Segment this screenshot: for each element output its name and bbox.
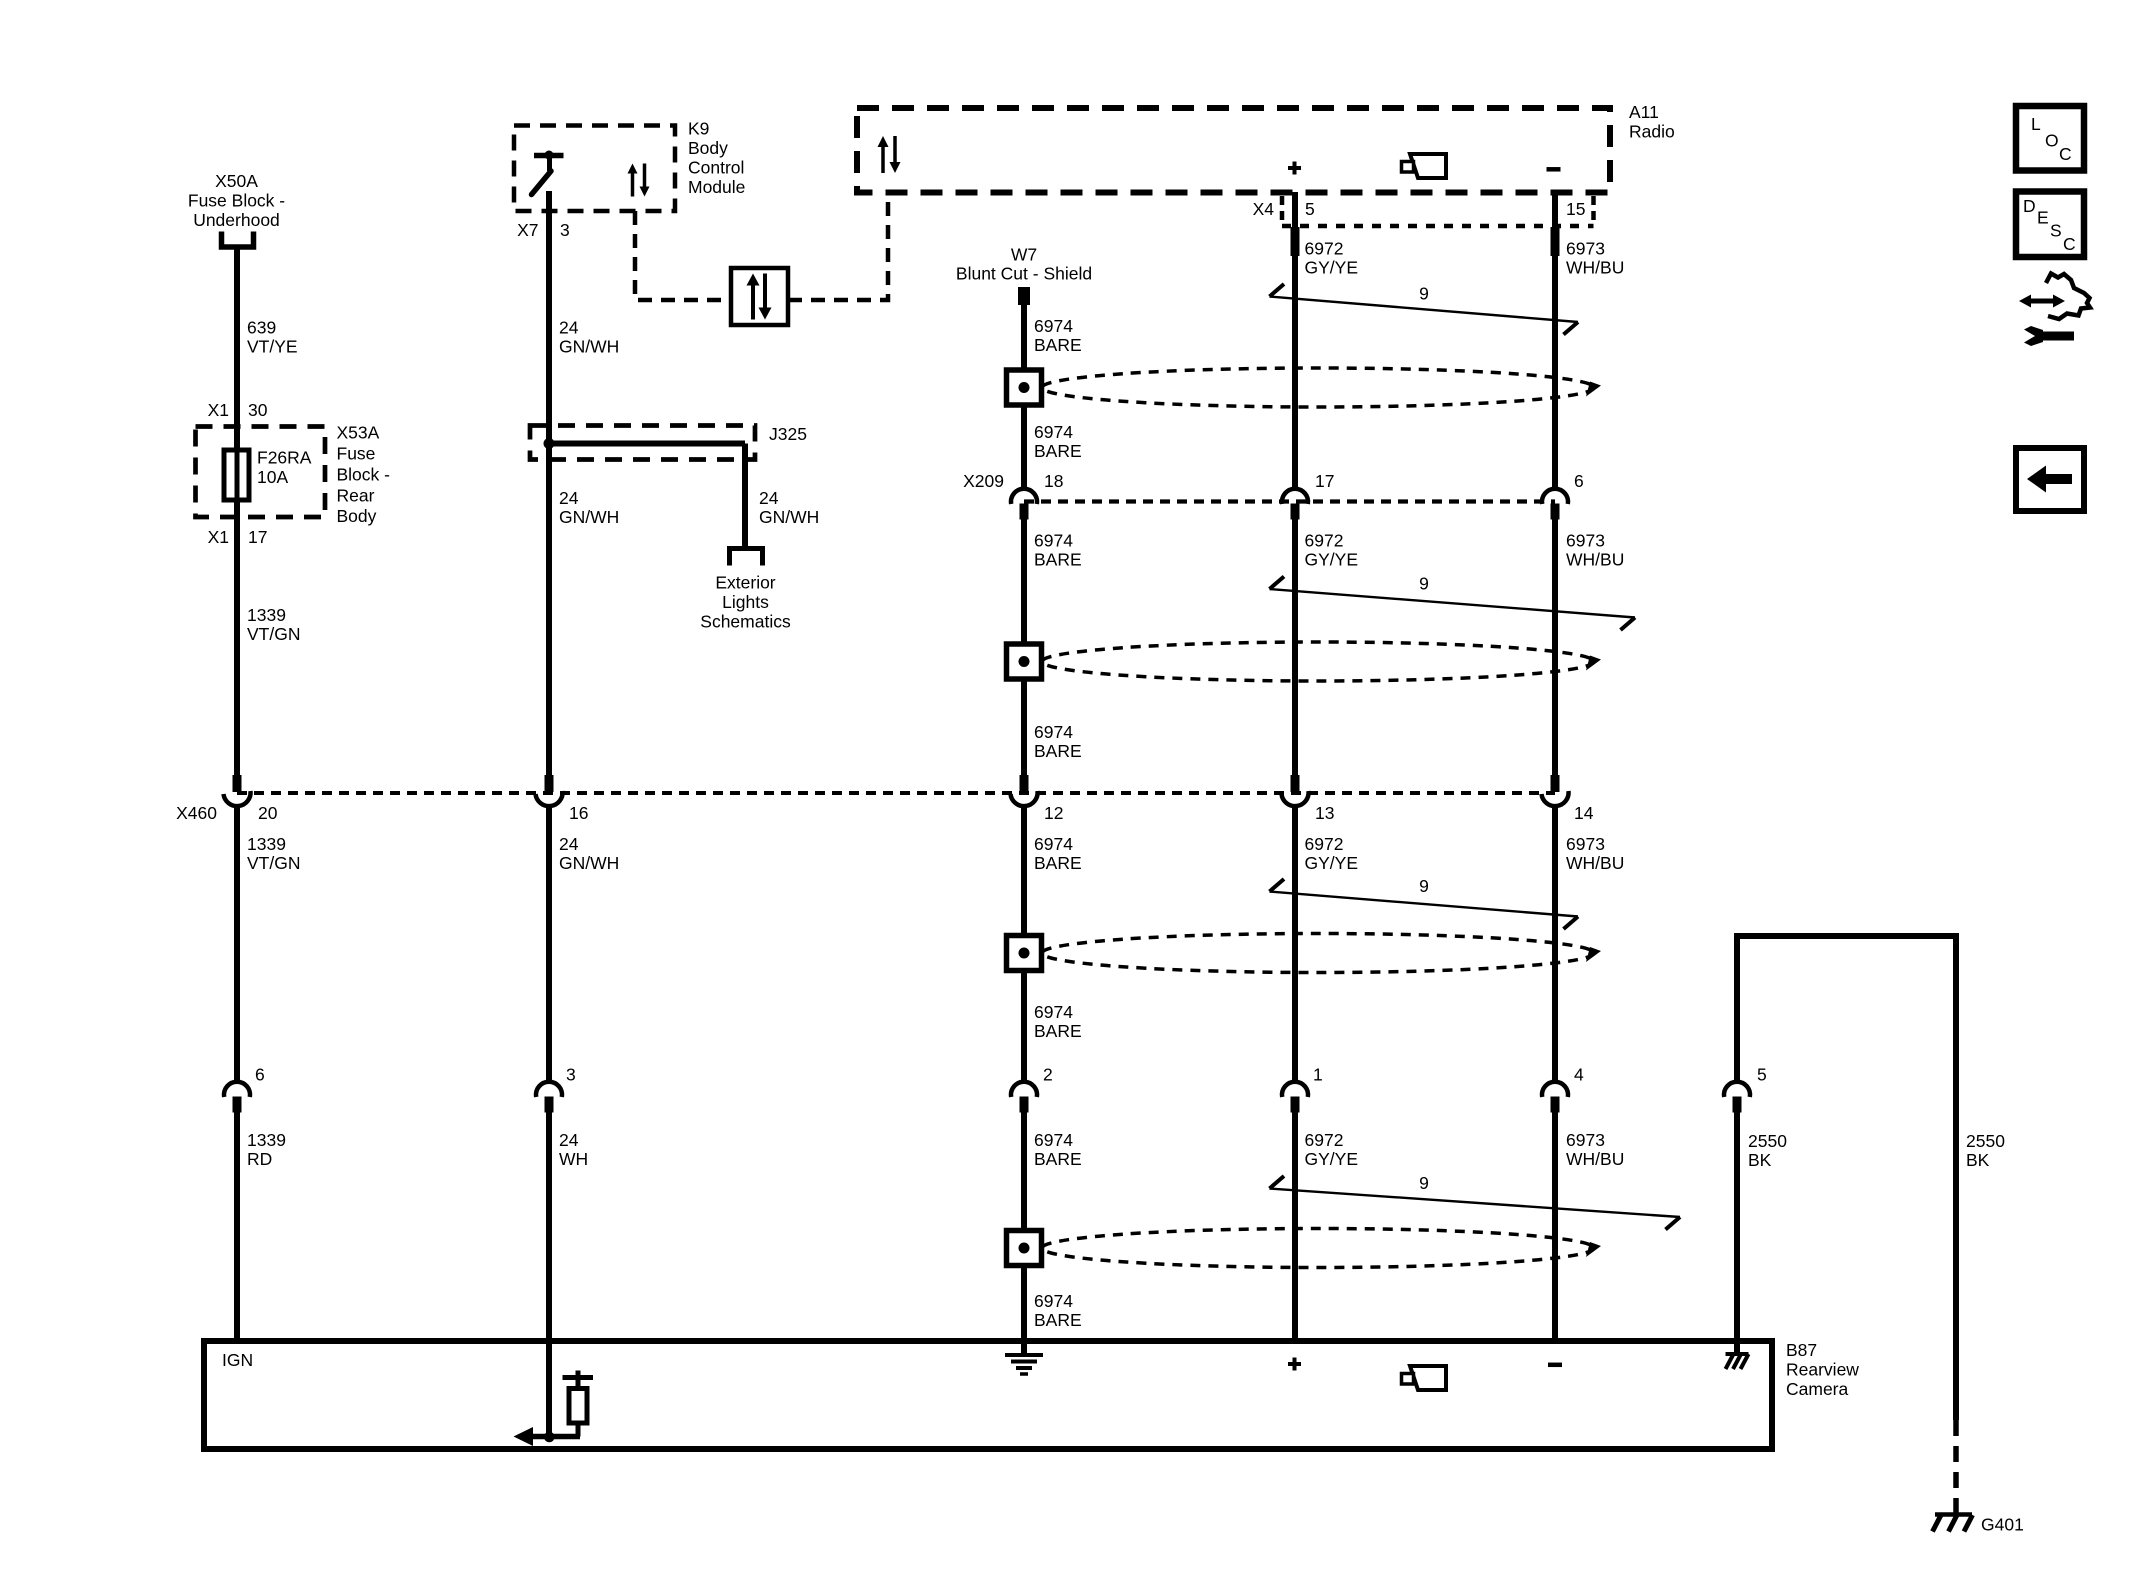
svg-text:6974: 6974 <box>1034 1291 1073 1311</box>
svg-text:24: 24 <box>759 488 779 508</box>
svg-text:BARE: BARE <box>1034 853 1082 873</box>
svg-text:GY/YE: GY/YE <box>1305 258 1359 278</box>
svg-text:C: C <box>2063 234 2076 254</box>
svg-text:Rear: Rear <box>337 485 375 505</box>
svg-text:6973: 6973 <box>1566 1130 1605 1150</box>
svg-text:Camera: Camera <box>1786 1379 1849 1399</box>
svg-text:6974: 6974 <box>1034 834 1073 854</box>
svg-text:BARE: BARE <box>1034 1149 1082 1169</box>
svg-text:30: 30 <box>248 400 268 420</box>
svg-text:BARE: BARE <box>1034 550 1082 570</box>
svg-text:6974: 6974 <box>1034 1130 1073 1150</box>
svg-text:VT/YE: VT/YE <box>247 336 298 356</box>
svg-text:GN/WH: GN/WH <box>559 853 619 873</box>
svg-text:J325: J325 <box>769 424 807 444</box>
svg-text:GN/WH: GN/WH <box>559 507 619 527</box>
svg-text:X4: X4 <box>1253 199 1275 219</box>
svg-text:6974: 6974 <box>1034 422 1073 442</box>
svg-text:17: 17 <box>248 527 267 547</box>
svg-text:15: 15 <box>1566 199 1585 219</box>
svg-text:E: E <box>2037 207 2049 227</box>
svg-text:WH/BU: WH/BU <box>1566 258 1624 278</box>
svg-text:Module: Module <box>688 177 745 197</box>
svg-text:9: 9 <box>1419 574 1429 594</box>
svg-text:Blunt Cut - Shield: Blunt Cut - Shield <box>956 263 1092 283</box>
svg-text:Lights: Lights <box>722 592 769 612</box>
svg-text:WH/BU: WH/BU <box>1566 1149 1624 1169</box>
svg-text:Exterior: Exterior <box>715 572 775 592</box>
svg-text:6972: 6972 <box>1305 531 1344 551</box>
svg-text:3: 3 <box>566 1065 576 1085</box>
svg-text:24: 24 <box>559 1130 579 1150</box>
svg-text:L: L <box>2031 114 2041 134</box>
svg-text:VT/GN: VT/GN <box>247 853 300 873</box>
svg-text:1339: 1339 <box>247 834 286 854</box>
svg-text:2550: 2550 <box>1966 1131 2005 1151</box>
svg-text:X1: X1 <box>208 400 229 420</box>
svg-text:BARE: BARE <box>1034 335 1082 355</box>
svg-text:BARE: BARE <box>1034 741 1082 761</box>
svg-text:W7: W7 <box>1011 244 1037 264</box>
svg-text:6972: 6972 <box>1305 1130 1344 1150</box>
svg-text:B87: B87 <box>1786 1340 1817 1360</box>
svg-text:6974: 6974 <box>1034 1002 1073 1022</box>
svg-text:K9: K9 <box>688 118 709 138</box>
svg-text:9: 9 <box>1419 1173 1429 1193</box>
svg-text:G401: G401 <box>1981 1515 2024 1535</box>
svg-text:1339: 1339 <box>247 1130 286 1150</box>
svg-text:1: 1 <box>1313 1065 1323 1085</box>
svg-text:BARE: BARE <box>1034 1310 1082 1330</box>
svg-text:X460: X460 <box>176 803 217 823</box>
svg-text:4: 4 <box>1574 1065 1584 1085</box>
svg-text:Fuse: Fuse <box>337 444 376 464</box>
svg-text:16: 16 <box>569 803 588 823</box>
svg-text:3: 3 <box>560 220 570 240</box>
svg-text:24: 24 <box>559 488 579 508</box>
svg-text:BK: BK <box>1748 1150 1772 1170</box>
svg-text:BARE: BARE <box>1034 441 1082 461</box>
svg-text:BK: BK <box>1966 1150 1990 1170</box>
svg-text:O: O <box>2045 130 2059 150</box>
svg-text:C: C <box>2059 144 2072 164</box>
svg-text:VT/GN: VT/GN <box>247 624 300 644</box>
svg-text:Rearview: Rearview <box>1786 1360 1859 1380</box>
svg-text:6: 6 <box>1574 471 1584 491</box>
svg-text:Body: Body <box>688 138 728 158</box>
svg-text:9: 9 <box>1419 876 1429 896</box>
svg-text:5: 5 <box>1305 199 1315 219</box>
svg-text:GY/YE: GY/YE <box>1305 550 1359 570</box>
svg-text:D: D <box>2023 196 2036 216</box>
svg-text:WH: WH <box>559 1149 588 1169</box>
svg-text:A11: A11 <box>1629 102 1659 122</box>
svg-text:Underhood: Underhood <box>193 210 280 230</box>
svg-text:2550: 2550 <box>1748 1131 1787 1151</box>
svg-text:WH/BU: WH/BU <box>1566 853 1624 873</box>
svg-text:12: 12 <box>1044 803 1063 823</box>
svg-text:17: 17 <box>1315 471 1334 491</box>
svg-text:10A: 10A <box>257 467 288 487</box>
svg-text:Block -: Block - <box>337 464 391 484</box>
svg-text:6973: 6973 <box>1566 834 1605 854</box>
svg-text:F26RA: F26RA <box>257 447 312 467</box>
svg-text:BARE: BARE <box>1034 1021 1082 1041</box>
svg-text:GY/YE: GY/YE <box>1305 1149 1359 1169</box>
svg-text:6974: 6974 <box>1034 531 1073 551</box>
svg-text:IGN: IGN <box>222 1350 253 1370</box>
svg-text:6973: 6973 <box>1566 531 1605 551</box>
svg-text:X50A: X50A <box>215 171 258 191</box>
svg-text:Radio: Radio <box>1629 121 1675 141</box>
svg-text:X53A: X53A <box>337 423 380 443</box>
svg-text:6974: 6974 <box>1034 316 1073 336</box>
svg-text:RD: RD <box>247 1149 272 1169</box>
svg-text:6973: 6973 <box>1566 239 1605 259</box>
svg-text:14: 14 <box>1574 803 1594 823</box>
svg-text:639: 639 <box>247 317 276 337</box>
svg-text:X7: X7 <box>517 220 538 240</box>
svg-text:GN/WH: GN/WH <box>559 336 619 356</box>
svg-text:6974: 6974 <box>1034 722 1073 742</box>
svg-text:6972: 6972 <box>1305 834 1344 854</box>
svg-text:18: 18 <box>1044 471 1063 491</box>
svg-text:GN/WH: GN/WH <box>759 507 819 527</box>
svg-text:13: 13 <box>1315 803 1334 823</box>
svg-text:Schematics: Schematics <box>700 611 791 631</box>
svg-text:S: S <box>2050 220 2062 240</box>
svg-text:Fuse Block -: Fuse Block - <box>188 190 285 210</box>
svg-text:24: 24 <box>559 834 579 854</box>
svg-text:9: 9 <box>1419 284 1429 304</box>
svg-text:20: 20 <box>258 803 278 823</box>
svg-text:24: 24 <box>559 317 579 337</box>
svg-text:GY/YE: GY/YE <box>1305 853 1359 873</box>
svg-text:2: 2 <box>1043 1065 1053 1085</box>
svg-text:6: 6 <box>255 1065 265 1085</box>
svg-text:X1: X1 <box>208 527 229 547</box>
svg-text:Body: Body <box>337 506 377 526</box>
svg-text:5: 5 <box>1757 1065 1767 1085</box>
svg-text:6972: 6972 <box>1305 239 1344 259</box>
svg-text:Control: Control <box>688 158 744 178</box>
svg-text:1339: 1339 <box>247 605 286 625</box>
svg-text:X209: X209 <box>963 471 1004 491</box>
svg-text:WH/BU: WH/BU <box>1566 550 1624 570</box>
